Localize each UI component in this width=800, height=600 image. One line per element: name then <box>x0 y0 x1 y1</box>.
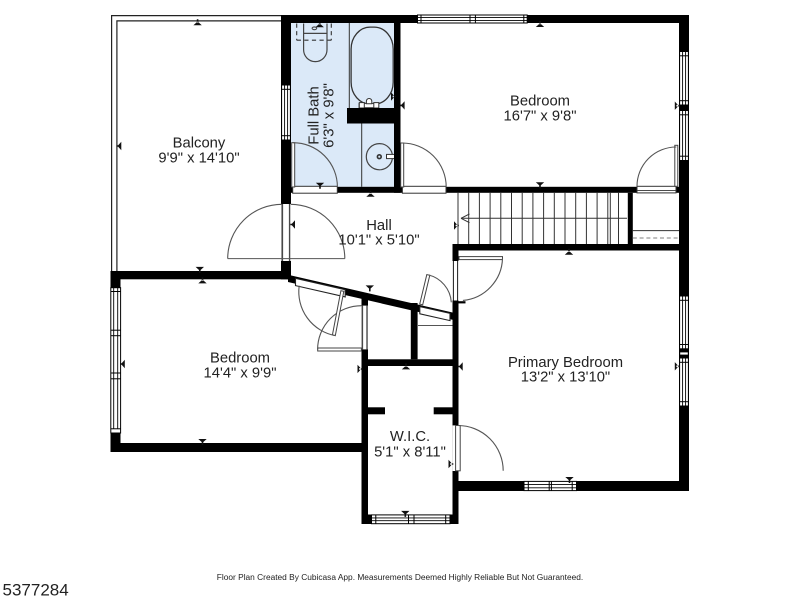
svg-text:10'1" x 5'10": 10'1" x 5'10" <box>338 232 419 248</box>
svg-text:14'4" x 9'9": 14'4" x 9'9" <box>204 365 277 381</box>
svg-text:Bedroom: Bedroom <box>510 94 570 110</box>
svg-text:Primary Bedroom: Primary Bedroom <box>508 355 623 371</box>
svg-text:Floor Plan Created By Cubicasa: Floor Plan Created By Cubicasa App. Meas… <box>217 572 583 582</box>
svg-text:13'2" x 13'10": 13'2" x 13'10" <box>521 370 610 386</box>
svg-text:9'9" x 14'10": 9'9" x 14'10" <box>158 150 239 166</box>
svg-text:5377284: 5377284 <box>3 581 69 600</box>
svg-text:5'1" x 8'11": 5'1" x 8'11" <box>374 445 446 461</box>
svg-text:Bedroom: Bedroom <box>210 351 270 367</box>
svg-text:W.I.C.: W.I.C. <box>390 429 430 445</box>
svg-text:Balcony: Balcony <box>173 136 226 152</box>
svg-text:6'3" x 9'8": 6'3" x 9'8" <box>322 83 338 148</box>
svg-text:Full Bath: Full Bath <box>307 86 323 144</box>
svg-text:16'7" x 9'8": 16'7" x 9'8" <box>504 108 577 124</box>
